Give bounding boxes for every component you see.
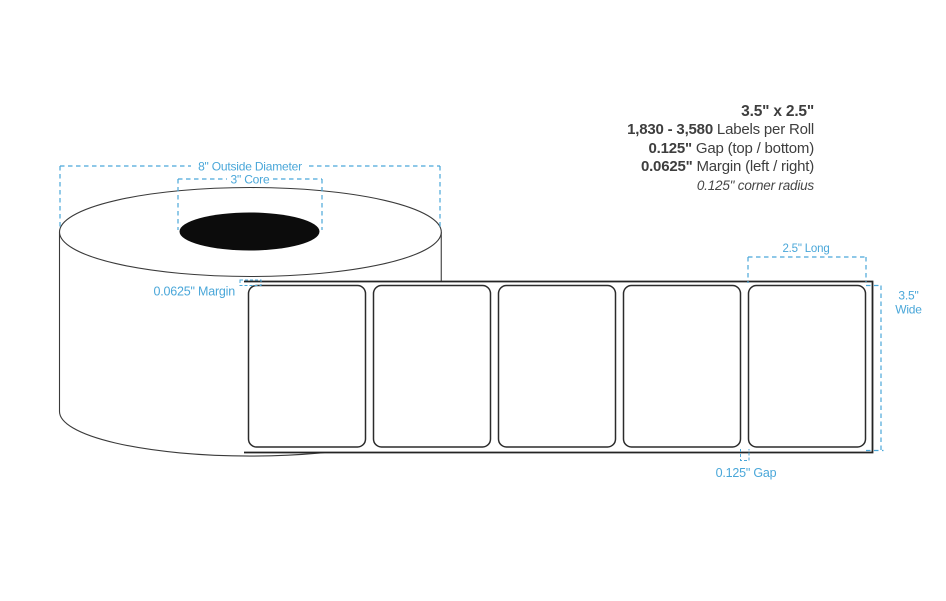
core-label: 3" Core xyxy=(231,173,270,187)
label-blank-1 xyxy=(249,286,366,448)
roll-diagram-canvas: 8" Outside Diameter 3" Core 0.0625" Marg… xyxy=(0,0,946,601)
spec-gap: 0.125" Gap (top / bottom) xyxy=(627,140,814,158)
spec-margin-value: 0.0625" xyxy=(641,158,693,175)
label-blank-5 xyxy=(749,286,866,448)
long-label: 2.5" Long xyxy=(782,243,829,255)
spec-size: 3.5" x 2.5" xyxy=(627,103,814,121)
spec-margin-text: Margin (left / right) xyxy=(693,158,814,175)
spec-labels-value: 1,830 - 3,580 xyxy=(627,121,713,138)
spec-gap-value: 0.125" xyxy=(648,140,691,157)
wide-label-line2: Wide xyxy=(895,303,922,317)
label-blank-4 xyxy=(624,286,741,448)
gap-label: 0.125" Gap xyxy=(716,466,777,480)
spec-text-block: 3.5" x 2.5" 1,830 - 3,580 Labels per Rol… xyxy=(627,103,814,195)
label-blank-2 xyxy=(374,286,491,448)
outside-diameter-label: 8" Outside Diameter xyxy=(198,160,302,174)
label-roll-spec-diagram: 8" Outside Diameter 3" Core 0.0625" Marg… xyxy=(0,0,946,601)
margin-label: 0.0625" Margin xyxy=(153,285,235,299)
spec-labels-text: Labels per Roll xyxy=(713,121,814,138)
roll-core-hole xyxy=(180,213,320,251)
spec-labels-per-roll: 1,830 - 3,580 Labels per Roll xyxy=(627,121,814,139)
spec-corner-radius: 0.125" corner radius xyxy=(627,177,814,195)
spec-margin: 0.0625" Margin (left / right) xyxy=(627,158,814,176)
wide-label-line1: 3.5" xyxy=(898,289,918,303)
spec-gap-text: Gap (top / bottom) xyxy=(692,140,814,157)
label-blank-3 xyxy=(499,286,616,448)
